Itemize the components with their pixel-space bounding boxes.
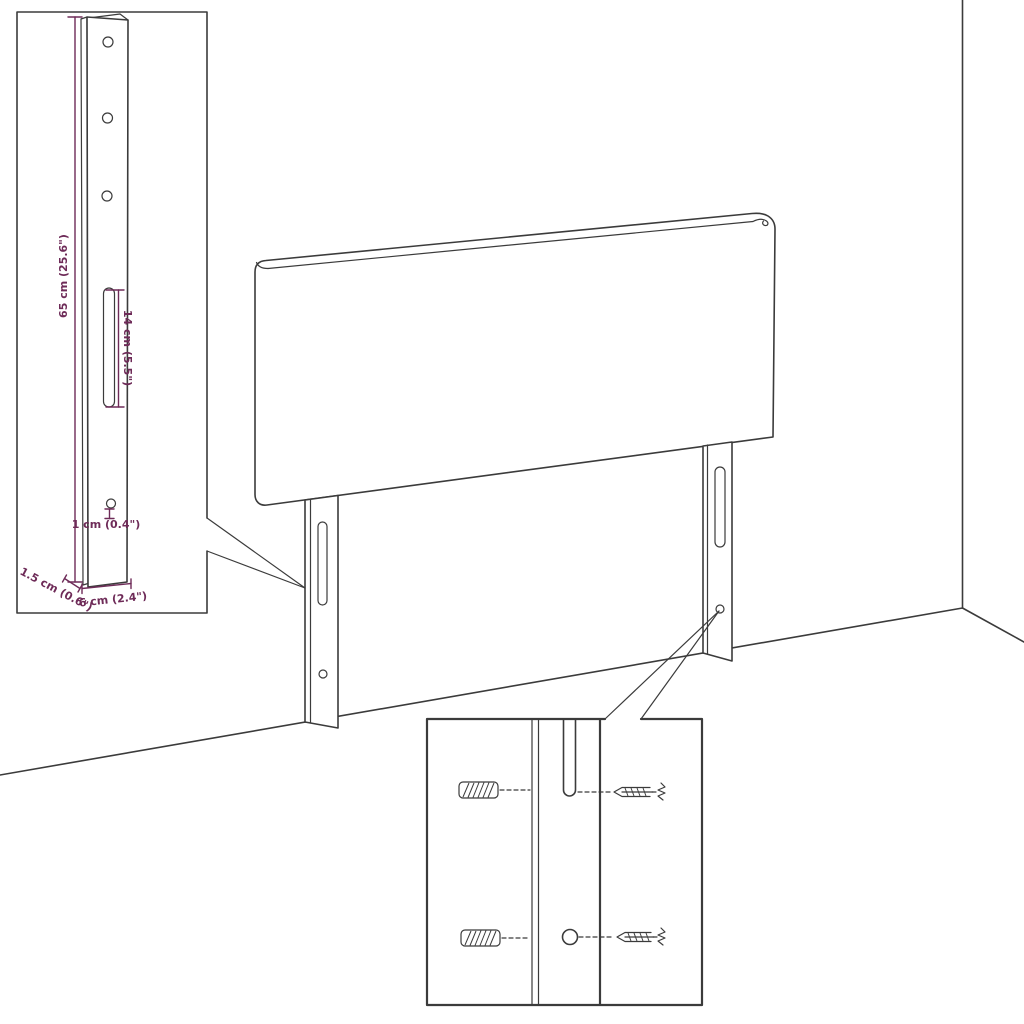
leg-detail-callout — [207, 518, 305, 588]
headboard — [255, 213, 775, 505]
callout-line — [605, 611, 719, 719]
diagram-canvas: 65 cm (25.6") 14 cm (5.5") 1 cm (0.4") 1… — [0, 0, 1024, 1024]
callout-line — [641, 611, 719, 719]
floor-line-right — [963, 608, 1024, 642]
mounting-detail-callout — [605, 611, 719, 719]
right-leg-slot — [715, 467, 725, 547]
mounting-detail-inset — [427, 719, 702, 1005]
dim-hole-diameter-label: 1 cm (0.4") — [72, 518, 141, 531]
headboard-panel — [255, 213, 775, 505]
headboard-assembly-diagram: 65 cm (25.6") 14 cm (5.5") 1 cm (0.4") 1… — [0, 0, 1024, 1024]
left-leg-slot — [318, 522, 327, 605]
dim-leg-height-label: 65 cm (25.6") — [57, 234, 70, 318]
callout-line — [207, 518, 305, 588]
callout-line — [207, 551, 305, 588]
dim-slot-length-label: 14 cm (5.5") — [121, 310, 134, 386]
leg-detail-inset: 65 cm (25.6") 14 cm (5.5") 1 cm (0.4") 1… — [17, 12, 207, 614]
mounting-detail-inset-box — [427, 719, 702, 1005]
